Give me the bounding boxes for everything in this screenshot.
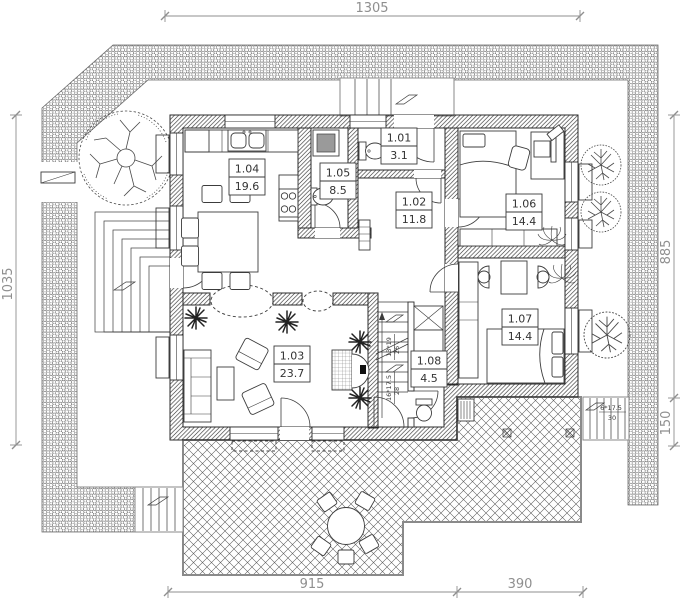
armchair-2 xyxy=(241,383,275,416)
room-label-1-04: 1.04 19.6 xyxy=(229,159,265,195)
room-area: 4.5 xyxy=(420,372,438,385)
room-label-1-08: 1.08 4.5 xyxy=(411,351,447,387)
doormat xyxy=(458,399,474,421)
exterior-stair-spec: 6*17.5 xyxy=(600,404,622,412)
dining-table xyxy=(198,212,258,272)
dim-right-lower-value: 150 xyxy=(659,411,674,436)
side-table xyxy=(501,261,527,294)
exterior-stair-tread: 30 xyxy=(608,414,616,422)
small-tree-3 xyxy=(584,312,630,358)
dining-table-set xyxy=(182,186,259,290)
room-area: 19.6 xyxy=(235,180,260,193)
tub-chair-right xyxy=(537,266,549,288)
dim-bottom-right-value: 390 xyxy=(508,577,533,592)
room-number: 1.03 xyxy=(280,350,305,363)
room-number: 1.02 xyxy=(402,196,427,209)
small-tree-2 xyxy=(581,192,621,232)
dimension-right-lower: 150 xyxy=(659,398,680,450)
dim-left-value: 1035 xyxy=(1,267,16,300)
toilet-2 xyxy=(416,399,432,421)
desk xyxy=(531,125,564,179)
plant-star-2 xyxy=(276,311,298,333)
room-label-1-06: 1.06 14.4 xyxy=(506,194,542,230)
room-area: 14.4 xyxy=(512,215,537,228)
dim-bottom-main-value: 915 xyxy=(300,577,325,592)
room-number: 1.08 xyxy=(417,355,442,368)
armchair-1 xyxy=(235,337,269,370)
room-area: 8.5 xyxy=(329,184,347,197)
kitchen-sink xyxy=(228,130,266,151)
room-number: 1.01 xyxy=(387,132,412,145)
coffee-table xyxy=(217,367,234,400)
room-area: 3.1 xyxy=(390,149,408,162)
radiator-hall xyxy=(359,220,370,250)
stove xyxy=(279,175,298,221)
floor-plan-drawing: 6*17.5 30 xyxy=(0,0,688,600)
room-area: 14.4 xyxy=(508,330,533,343)
arched-openings xyxy=(211,285,333,317)
plant-star-4 xyxy=(349,387,371,409)
exterior-stairs-right: 6*17.5 30 xyxy=(583,397,629,440)
steps-bottom-left xyxy=(135,487,183,532)
dimension-left: 1035 xyxy=(1,111,22,449)
room-number: 1.05 xyxy=(326,167,351,180)
tub-chair-left xyxy=(478,266,490,288)
small-tree-1 xyxy=(581,145,621,185)
kitchen-fittings xyxy=(182,130,299,290)
room-label-1-07: 1.07 14.4 xyxy=(502,309,538,345)
garden-gate xyxy=(38,162,78,202)
dim-top-value: 1305 xyxy=(355,1,388,16)
sofa xyxy=(184,350,211,422)
dimension-right-upper: 885 xyxy=(659,111,680,402)
room-number: 1.06 xyxy=(512,198,537,211)
room-label-1-01: 1.01 3.1 xyxy=(381,128,417,164)
room-label-1-02: 1.02 11.8 xyxy=(396,192,432,228)
stair-spec-upper: 13*19 xyxy=(385,337,393,357)
room-number: 1.04 xyxy=(235,163,260,176)
floor-plan-page: 6*17.5 30 xyxy=(0,0,688,600)
dimension-top: 1305 xyxy=(161,1,584,22)
dimension-bottom-right: 390 xyxy=(457,577,587,598)
shower xyxy=(313,130,339,156)
dim-right-upper-value: 885 xyxy=(659,240,674,265)
sideboard xyxy=(460,229,557,246)
plant-star-3 xyxy=(349,331,371,353)
room-label-1-05: 1.05 8.5 xyxy=(320,163,356,199)
terrace xyxy=(183,397,581,575)
room-area: 11.8 xyxy=(402,213,427,226)
wardrobe xyxy=(459,262,478,378)
room-area: 23.7 xyxy=(280,367,305,380)
room-number: 1.07 xyxy=(508,313,533,326)
stair-spec-lower: 16*17.5 xyxy=(385,375,393,401)
fireplace xyxy=(332,350,369,390)
staircase: 13*19 26 16*17.5 28 xyxy=(376,302,414,427)
garden-steps xyxy=(95,212,170,332)
plant-star-1 xyxy=(185,307,207,329)
room-label-1-03: 1.03 23.7 xyxy=(274,346,310,382)
entrance-steps xyxy=(340,78,454,116)
dimension-bottom-main: 915 xyxy=(164,577,461,598)
